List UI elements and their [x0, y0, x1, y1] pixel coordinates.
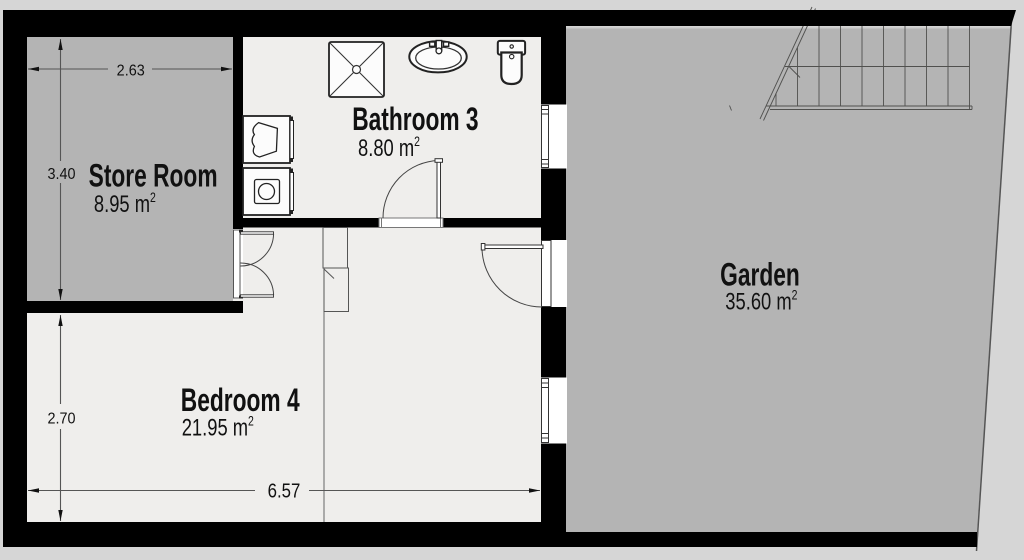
svg-text:2.63: 2.63 — [117, 62, 145, 80]
svg-text:3.40: 3.40 — [47, 165, 75, 183]
svg-text:8.80 m2: 8.80 m2 — [358, 133, 420, 161]
svg-text:2.70: 2.70 — [47, 410, 75, 428]
svg-text:6.57: 6.57 — [268, 479, 301, 502]
svg-text:Bathroom 3: Bathroom 3 — [352, 101, 478, 137]
svg-text:35.60 m2: 35.60 m2 — [725, 287, 797, 315]
svg-text:21.95 m2: 21.95 m2 — [182, 413, 254, 441]
svg-text:8.95 m2: 8.95 m2 — [94, 189, 156, 217]
svg-text:Store Room: Store Room — [89, 157, 218, 193]
